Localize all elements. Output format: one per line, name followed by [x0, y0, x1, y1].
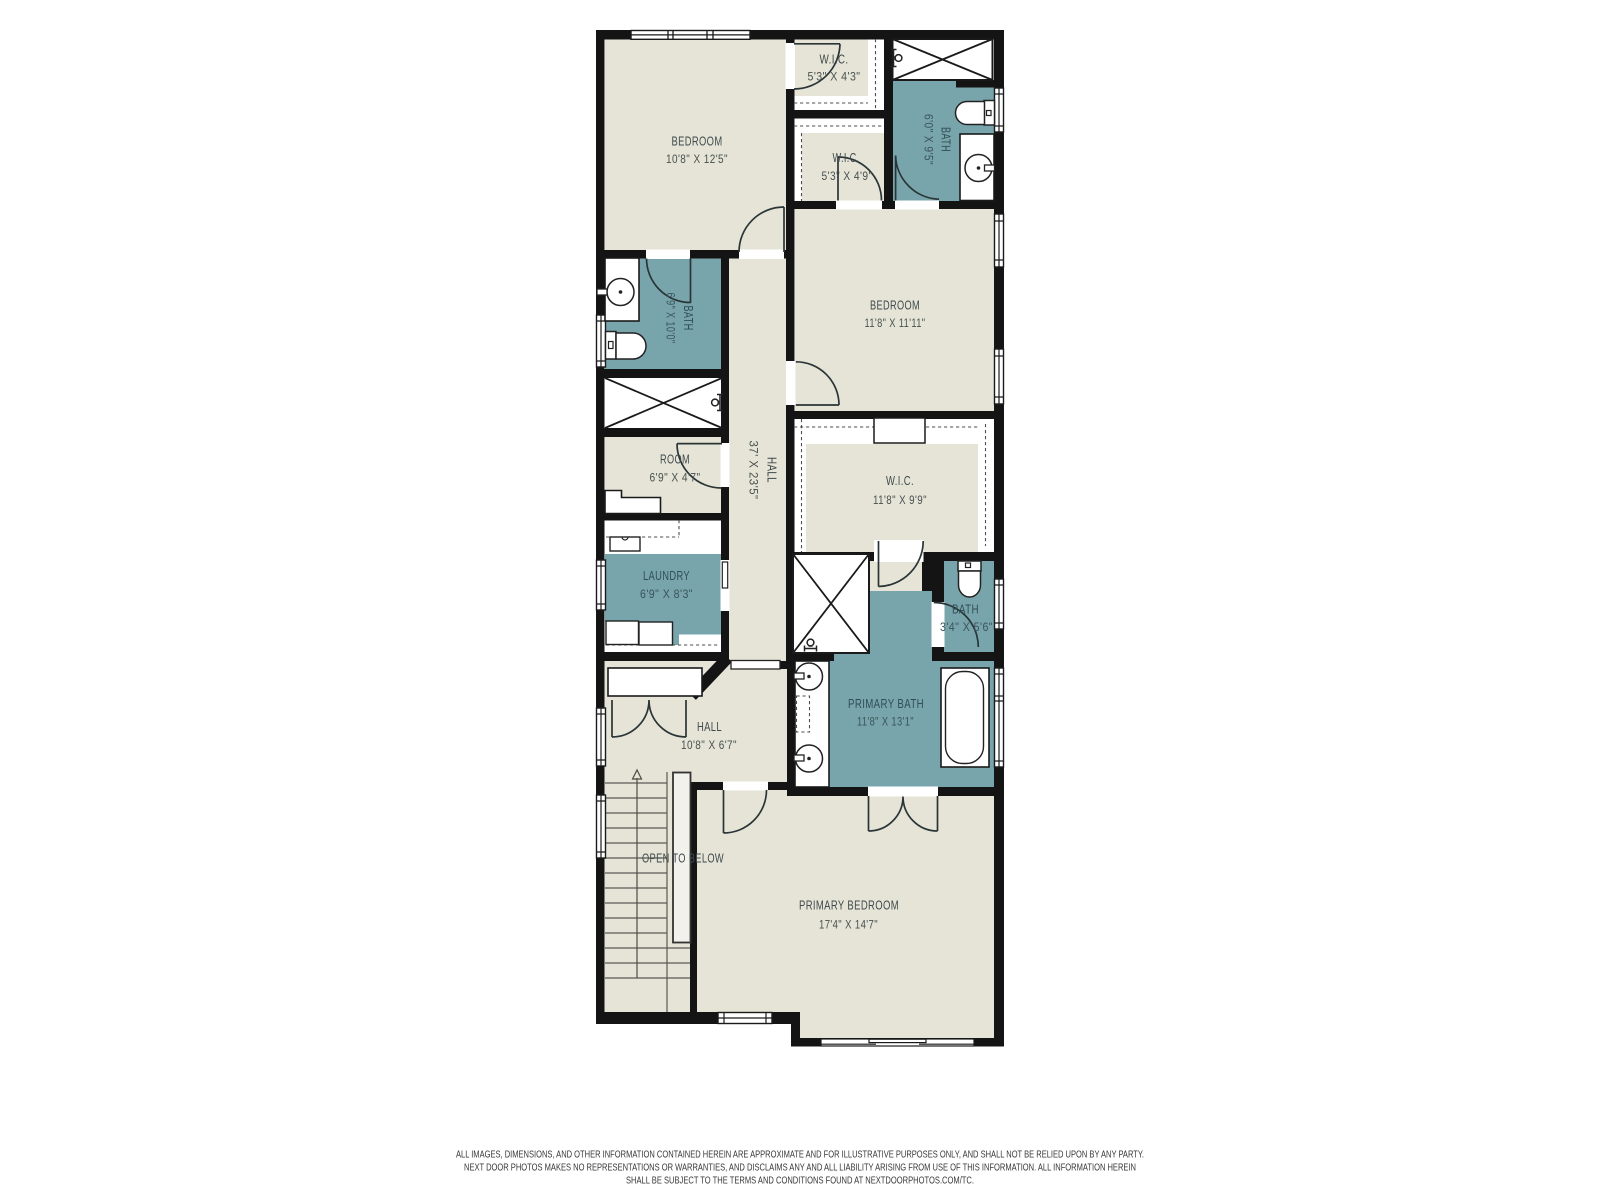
- svg-text:10'8" X 12'5": 10'8" X 12'5": [666, 152, 728, 166]
- svg-text:W.I.C.: W.I.C.: [820, 52, 849, 67]
- svg-text:PRIMARY BATH: PRIMARY BATH: [848, 696, 924, 711]
- svg-text:W.I.C.: W.I.C.: [886, 473, 914, 488]
- svg-text:6'9" X 4'7": 6'9" X 4'7": [650, 471, 701, 485]
- svg-text:BEDROOM: BEDROOM: [870, 298, 920, 313]
- svg-text:5'3" X 4'3": 5'3" X 4'3": [808, 70, 861, 84]
- svg-text:6'9" X 10'0": 6'9" X 10'0": [664, 293, 678, 344]
- svg-text:17'4" X 14'7": 17'4" X 14'7": [819, 918, 878, 932]
- svg-text:W.I.C.: W.I.C.: [833, 150, 860, 165]
- svg-text:6'0" X 9'5": 6'0" X 9'5": [922, 114, 936, 165]
- svg-text:ALL IMAGES, DIMENSIONS, AND OT: ALL IMAGES, DIMENSIONS, AND OTHER INFORM…: [456, 1149, 1144, 1161]
- svg-text:PRIMARY BEDROOM: PRIMARY BEDROOM: [799, 898, 899, 913]
- svg-text:5'3" X 4'9": 5'3" X 4'9": [822, 169, 873, 183]
- svg-text:SHALL BE SUBJECT TO THE TERMS: SHALL BE SUBJECT TO THE TERMS AND CONDIT…: [626, 1175, 974, 1187]
- svg-text:11'8" X 13'1": 11'8" X 13'1": [857, 715, 914, 729]
- svg-text:BATH: BATH: [681, 306, 696, 331]
- svg-text:OPEN TO BELOW: OPEN TO BELOW: [642, 851, 724, 866]
- svg-text:HALL: HALL: [697, 719, 722, 734]
- svg-text:NEXT DOOR PHOTOS MAKES NO REPR: NEXT DOOR PHOTOS MAKES NO REPRESENTATION…: [464, 1162, 1136, 1174]
- svg-text:10'8" X 6'7": 10'8" X 6'7": [681, 738, 737, 752]
- svg-text:3'4" X 5'6": 3'4" X 5'6": [940, 620, 993, 634]
- svg-text:HALL: HALL: [765, 457, 780, 483]
- svg-text:6'9" X 8'3": 6'9" X 8'3": [640, 587, 693, 601]
- svg-text:BEDROOM: BEDROOM: [672, 134, 723, 149]
- svg-text:BATH: BATH: [939, 127, 954, 152]
- svg-text:LAUNDRY: LAUNDRY: [643, 568, 690, 583]
- svg-text:11'8" X 11'11": 11'8" X 11'11": [865, 316, 926, 330]
- svg-text:37' X 23'5": 37' X 23'5": [747, 441, 761, 500]
- svg-text:11'8" X 9'9": 11'8" X 9'9": [873, 493, 927, 507]
- svg-text:BATH: BATH: [952, 602, 979, 617]
- svg-text:ROOM: ROOM: [660, 452, 690, 467]
